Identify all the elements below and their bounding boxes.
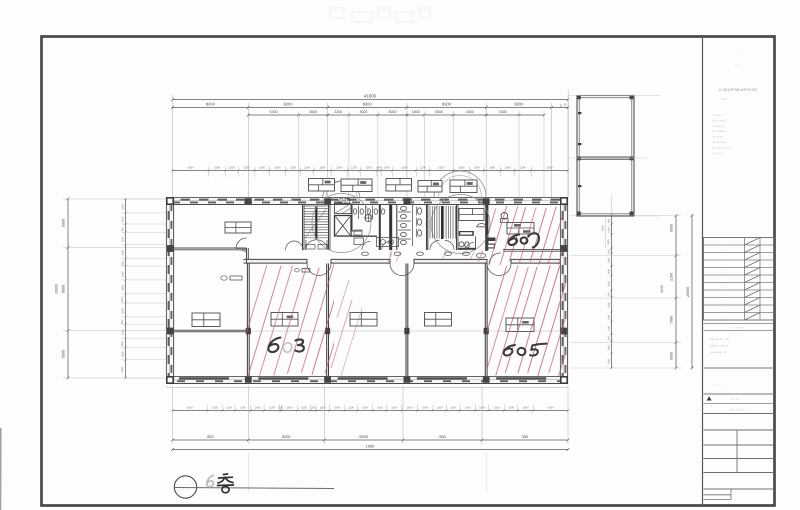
svg-text:1500: 1500 [121, 329, 124, 335]
svg-text:1500: 1500 [489, 166, 495, 169]
svg-text:- - -: - - - [720, 264, 724, 267]
svg-text:1300: 1300 [607, 257, 610, 263]
svg-text:- a -c - ra-: - a -c - ra- [732, 326, 744, 330]
svg-text:1500: 1500 [391, 406, 397, 409]
svg-text:1500: 1500 [121, 284, 124, 290]
svg-text:1300: 1300 [437, 406, 443, 409]
svg-text:700: 700 [607, 336, 610, 341]
svg-text:1500: 1500 [336, 166, 342, 169]
svg-text:1000: 1000 [607, 269, 610, 275]
svg-text:2055: 2055 [121, 366, 124, 372]
svg-text:1200: 1200 [420, 166, 426, 169]
svg-text:8200: 8200 [282, 435, 290, 439]
svg-text:1500: 1500 [269, 406, 275, 409]
svg-text:1200: 1200 [304, 166, 310, 169]
svg-text:t rc/a -ca d: t rc/a -ca d [712, 118, 726, 122]
svg-text:1000: 1000 [121, 296, 124, 302]
svg-text:c-a ca -a-ca a-: c-a ca -a-ca a- [712, 145, 731, 149]
svg-text:- - -: - - - [720, 241, 724, 244]
svg-text:20500: 20500 [686, 287, 690, 297]
svg-text:5200: 5200 [270, 110, 278, 114]
svg-text:1585: 1585 [121, 204, 124, 210]
svg-text:3000: 3000 [388, 110, 396, 114]
svg-text:1500: 1500 [121, 249, 124, 255]
svg-text:1000: 1000 [366, 445, 374, 449]
svg-text:1500: 1500 [334, 406, 340, 409]
svg-text:1300: 1300 [505, 166, 511, 169]
svg-text:a-c -ca- a-c-: a-c -ca- a-c- [730, 408, 745, 412]
svg-text:3400: 3400 [466, 110, 474, 114]
svg-text:1500: 1500 [494, 406, 500, 409]
svg-text:8200: 8200 [284, 102, 294, 107]
svg-text:1300: 1300 [607, 345, 610, 351]
svg-text:400: 400 [377, 166, 382, 169]
svg-text:8300: 8300 [442, 102, 452, 107]
svg-text:700: 700 [607, 292, 610, 297]
svg-text:1500: 1500 [274, 166, 280, 169]
svg-text:3000: 3000 [309, 110, 317, 114]
svg-text:3000: 3000 [359, 110, 367, 114]
svg-text:1500: 1500 [287, 406, 293, 409]
svg-text:1350: 1350 [121, 236, 124, 242]
svg-text:1500: 1500 [607, 239, 610, 245]
svg-text:330: 330 [522, 435, 528, 439]
svg-text:· - · - · - ·: · - · - · - · [712, 382, 724, 386]
svg-text:- a- -c- -: - a- -c- - [730, 397, 740, 401]
svg-text:20: 20 [563, 103, 567, 107]
svg-text:2190: 2190 [401, 166, 407, 169]
svg-text:1500: 1500 [244, 166, 250, 169]
svg-text:800: 800 [121, 261, 124, 266]
svg-text:ra- -a -ca-a: ra- -a -ca-a [712, 140, 727, 144]
svg-text:1000: 1000 [121, 340, 124, 346]
svg-text:1300: 1300 [450, 406, 456, 409]
svg-text:200: 200 [279, 406, 284, 409]
svg-text:-ca r+ -a-: -ca r+ -a- [712, 151, 724, 155]
svg-text:4025: 4025 [601, 225, 604, 231]
svg-text:800: 800 [439, 435, 445, 439]
svg-text:ca -a+ca-a-: ca -a+ca-a- [712, 129, 727, 133]
svg-text:9600: 9600 [660, 285, 664, 293]
svg-text:1500: 1500 [523, 406, 529, 409]
svg-text:3000: 3000 [435, 110, 443, 114]
svg-text:5000: 5000 [62, 219, 66, 227]
svg-text:1300: 1300 [320, 406, 326, 409]
svg-text:8200: 8200 [359, 435, 367, 439]
svg-text:800: 800 [121, 319, 124, 324]
svg-text:1300: 1300 [255, 406, 261, 409]
svg-text:1500: 1500 [121, 216, 124, 222]
svg-text:1300: 1300 [607, 325, 610, 331]
svg-text:1200: 1200 [348, 406, 354, 409]
svg-text:1500: 1500 [422, 406, 428, 409]
svg-text:20500: 20500 [55, 284, 59, 294]
svg-text:3350: 3350 [548, 406, 554, 409]
svg-text:1500: 1500 [607, 358, 610, 364]
svg-text:8200: 8200 [514, 102, 524, 107]
svg-text:-a ca--ac: -a ca--ac [712, 135, 724, 139]
svg-text:8200: 8200 [206, 102, 216, 107]
svg-text:1500: 1500 [366, 166, 372, 169]
svg-text:1170: 1170 [351, 166, 357, 169]
svg-text:1300: 1300 [474, 166, 480, 169]
svg-text:▫▫ ▫▫: ▫▫ ▫▫ [735, 64, 742, 68]
svg-text:900: 900 [607, 218, 610, 223]
svg-text:- - -: - - - [720, 249, 724, 252]
svg-text:5500: 5500 [62, 350, 66, 358]
svg-text:3350: 3350 [187, 406, 193, 409]
svg-text:500: 500 [607, 249, 610, 254]
svg-text:1500: 1500 [214, 166, 220, 169]
svg-text:1500: 1500 [465, 406, 471, 409]
svg-text:900: 900 [121, 226, 124, 231]
svg-text:- - -: - - - [720, 279, 724, 282]
svg-text:1500: 1500 [212, 406, 218, 409]
svg-text:1500: 1500 [407, 406, 413, 409]
svg-text:820: 820 [207, 435, 213, 439]
svg-text:ca -a-c a - -ca: ca -a-c a - -ca [710, 337, 729, 341]
svg-text:1300: 1300 [479, 406, 485, 409]
svg-text:1500: 1500 [607, 302, 610, 308]
svg-text:9500: 9500 [62, 285, 66, 293]
svg-text:- - -: - - - [720, 256, 724, 259]
svg-text:1300: 1300 [121, 351, 124, 357]
svg-text:A OB ATFNB 4OPEH3E: A OB ATFNB 4OPEH3E [719, 88, 758, 92]
svg-text:7300: 7300 [670, 316, 674, 324]
svg-text:- - -: - - - [720, 309, 724, 312]
svg-text:· 1·B·: · 1·B· [719, 97, 727, 101]
svg-text:5500: 5500 [670, 352, 674, 360]
svg-text:1300: 1300 [377, 406, 383, 409]
svg-text:2150: 2150 [438, 166, 444, 169]
svg-text:1200: 1200 [229, 166, 235, 169]
svg-text:1300: 1300 [301, 406, 307, 409]
svg-text:- nr a= c- .: - nr a= c- . [712, 113, 725, 117]
svg-text:2200: 2200 [334, 110, 342, 114]
svg-text:1000: 1000 [384, 166, 390, 169]
svg-text:· · · ·: · · · · [735, 49, 742, 53]
svg-text:- - -: - - - [720, 316, 724, 319]
svg-text:- - -: - - - [720, 301, 724, 304]
svg-text:2200: 2200 [670, 273, 674, 281]
svg-text:5500: 5500 [670, 224, 674, 232]
svg-text:1300: 1300 [508, 406, 514, 409]
svg-text:1800: 1800 [412, 110, 420, 114]
svg-text:1350: 1350 [290, 166, 296, 169]
svg-text:1200: 1200 [226, 406, 232, 409]
svg-text:3350: 3350 [547, 166, 553, 169]
svg-text:1000: 1000 [607, 314, 610, 320]
svg-text:1500: 1500 [121, 271, 124, 277]
svg-text:1500: 1500 [362, 406, 368, 409]
svg-text:a-ca- - c-a ca: a-ca- - c-a ca [710, 343, 728, 347]
svg-text:8300: 8300 [363, 102, 373, 107]
svg-text:1000: 1000 [607, 227, 610, 233]
svg-text:1500: 1500 [607, 281, 610, 287]
svg-text:1500: 1500 [240, 406, 246, 409]
svg-text:1300: 1300 [259, 166, 265, 169]
svg-text:- - -: - - - [720, 286, 724, 289]
svg-text:3300: 3300 [188, 166, 194, 169]
svg-text:500: 500 [311, 406, 316, 409]
svg-text:-a- a-c-a - a: -a- a-c-a - a [710, 350, 726, 354]
svg-text:1580: 1580 [319, 166, 325, 169]
svg-text:1500: 1500 [121, 308, 124, 314]
svg-text:41000: 41000 [364, 94, 377, 99]
svg-text:1500: 1500 [520, 166, 526, 169]
svg-text:r -ca-a ra-: r -ca-a ra- [712, 124, 725, 128]
svg-text:1500: 1500 [458, 166, 464, 169]
svg-text:- - -: - - - [720, 271, 724, 274]
svg-text:3300: 3300 [499, 110, 507, 114]
svg-text:- - -: - - - [720, 294, 724, 297]
